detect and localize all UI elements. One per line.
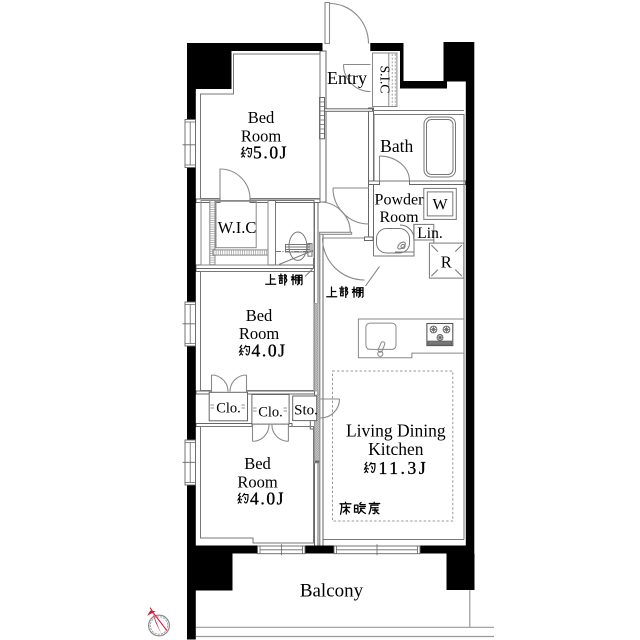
svg-text:Balcony: Balcony [300,581,364,602]
svg-text:Entry: Entry [327,68,367,88]
svg-text:Bath: Bath [380,136,413,156]
svg-text:Bed: Bed [248,108,275,127]
svg-text:W.I.C: W.I.C [218,218,257,237]
svg-text:Bed: Bed [244,454,271,473]
svg-text:W: W [432,197,448,214]
svg-text:Clo.: Clo. [216,401,241,417]
svg-text:11.3J: 11.3J [379,458,429,478]
svg-text:Bed: Bed [246,306,273,325]
svg-text:S.I.C: S.I.C [378,66,393,94]
svg-text:Room: Room [379,209,419,226]
svg-text:Living Dining: Living Dining [346,421,446,441]
svg-text:Lin.: Lin. [417,225,442,242]
svg-text:Clo.: Clo. [258,405,283,421]
svg-text:R: R [441,253,452,272]
svg-text:Kitchen: Kitchen [368,439,424,459]
svg-text:5.0J: 5.0J [253,143,288,163]
svg-text:4.0J: 4.0J [250,489,285,509]
svg-text:4.0J: 4.0J [252,341,287,361]
svg-text:Sto.: Sto. [294,403,318,419]
svg-text:Powder: Powder [375,192,425,209]
